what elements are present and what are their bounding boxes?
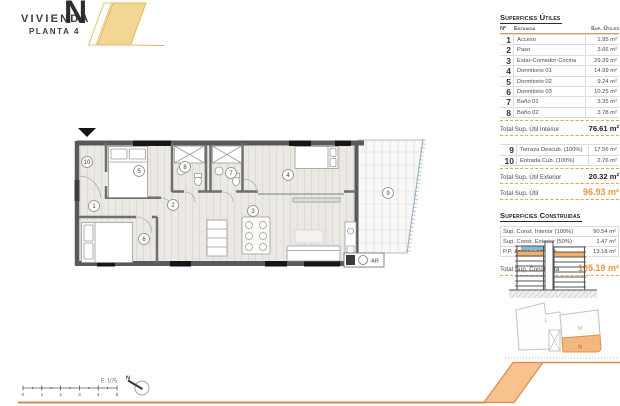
total-exterior: Total Sup. Útil Exterior 20.32 m² (500, 172, 619, 181)
table-row: 1Acceso1.95 m² (500, 35, 619, 45)
table-row: 5Dormitorio 029.24 m² (500, 77, 619, 87)
floor-plan: AR 10 1 2 3 4 5 6 7 8 9 (55, 110, 475, 275)
utiles-title: Superficies Útiles (500, 13, 562, 24)
site-label-l: L (545, 318, 548, 324)
table-row: 6Dormitorio 0310.25 m² (500, 87, 619, 97)
table-row: 9Terraza Descub. (100%)17.56 m² (500, 145, 619, 155)
room-10-label: 10 (84, 160, 91, 166)
total-util: Total Sup. Útil 96.93 m² (500, 187, 619, 197)
elevator-core (545, 242, 553, 295)
table-row: 8Baño 023.78 m² (500, 108, 619, 118)
entrance-door-leaf (75, 180, 80, 201)
table-row: Sup. Const. Interior (100%)90.54 m² (500, 227, 619, 237)
site-label-m: M (578, 326, 582, 332)
table-row: 10Entrada Cub. (100%)2.76 m² (500, 156, 619, 166)
construidas-title: Superficies Construidas (500, 211, 582, 222)
table-row: 2Paso3.66 m² (500, 45, 619, 55)
rooftop-pool (521, 247, 545, 251)
utiles-table-header: Nº Estancia Sup. Útiles (500, 26, 619, 34)
divider (500, 199, 619, 200)
ar-dark-unit (346, 255, 355, 265)
entrance-arrow-icon (78, 128, 96, 137)
ar-box: AR (344, 253, 384, 267)
highlight-floor-left (516, 252, 544, 257)
highlight-floor-right (553, 253, 585, 258)
col-room: Estancia (514, 26, 585, 32)
divider (500, 168, 619, 169)
divider (500, 120, 619, 121)
ground-hatch (509, 290, 597, 298)
building-elevation (505, 238, 605, 302)
divider (500, 135, 619, 136)
utiles-table: 1Acceso1.95 m² 2Paso3.66 m² 3Estar-Comed… (500, 34, 619, 118)
floor-label: PLANTA 4 (29, 27, 80, 36)
total-interior: Total Sup. Útil Interior 76.61 m² (500, 124, 619, 133)
exterior-table: 9Terraza Descub. (100%)17.56 m² 10Entrad… (500, 144, 619, 166)
col-sup: Sup. Útiles (585, 26, 619, 32)
site-label-n: N (578, 345, 582, 351)
site-block-m (560, 310, 600, 338)
col-num: Nº (500, 26, 514, 32)
table-row: 3Estar-Comedor-Cocina29.39 m² (500, 56, 619, 66)
footer-parallelogram (484, 363, 543, 403)
table-row: 4Dormitorio 0114.99 m² (500, 66, 619, 76)
ar-label: AR (371, 259, 379, 265)
footer-decoration (0, 352, 620, 406)
plan-sheet: VIVIENDA N PLANTA 4 (0, 0, 620, 406)
gold-line (131, 45, 165, 46)
divider (500, 183, 619, 184)
header-decoration (80, 0, 180, 50)
table-row: 7Baño 013.35 m² (500, 97, 619, 107)
site-key-plan: L M N (505, 298, 618, 358)
